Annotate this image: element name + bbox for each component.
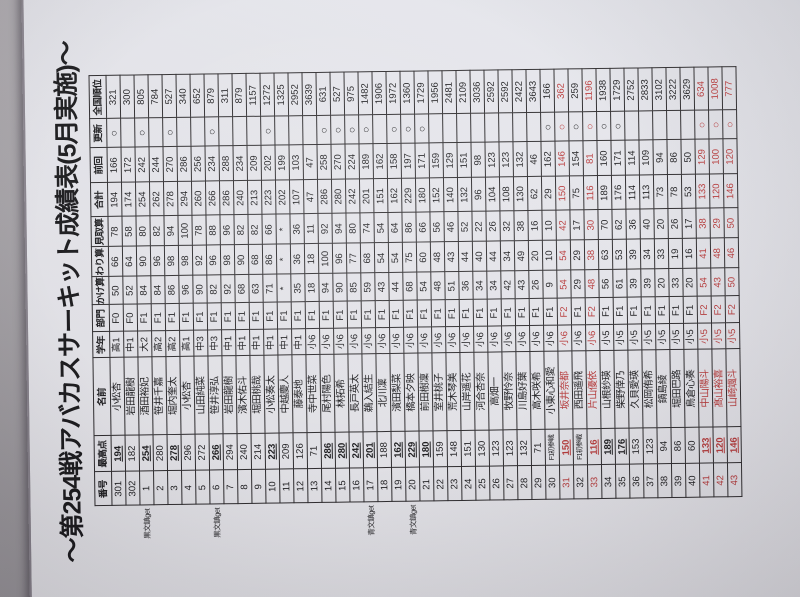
cell-number: 7	[224, 470, 238, 504]
cell-best-score: 286	[321, 433, 336, 469]
cell-prize-note	[448, 501, 463, 539]
cell-multiplication: 39	[641, 269, 655, 297]
cell-number: 26	[490, 466, 504, 500]
cell-division-score: 34	[640, 239, 654, 269]
cell-best-score: 151	[461, 431, 476, 467]
cell-total: 104	[485, 177, 499, 211]
cell-previous: 166	[107, 148, 121, 183]
cell-total: 174	[122, 182, 136, 216]
cell-previous: 286	[177, 147, 191, 182]
cell-division: F1	[375, 301, 389, 328]
cell-total: 107	[289, 180, 303, 214]
cell-multiplication: *	[277, 274, 291, 302]
cell-total: 162	[387, 179, 401, 213]
page-title: ～第254戦アバカスサーキット成績表(5月実施)～	[45, 0, 89, 597]
cell-name: 西田遥飛	[572, 351, 587, 429]
cell-best-score: 148	[447, 431, 462, 467]
cell-number: 13	[308, 469, 322, 503]
cell-best-score: 162	[391, 432, 406, 468]
cell-division-score: 44	[486, 241, 500, 271]
cell-best-score: 176	[615, 429, 630, 465]
cell-update-mark	[121, 118, 135, 147]
cell-number: 24	[462, 467, 476, 501]
cell-mitori: 17	[570, 210, 584, 240]
cell-mitori: 16	[528, 211, 542, 241]
cell-total: 47	[303, 180, 317, 214]
cell-total: 151	[373, 179, 387, 213]
cell-grade: 小5	[628, 324, 642, 350]
cell-multiplication: 34	[473, 272, 487, 300]
cell-division-score: 77	[346, 243, 360, 273]
cell-division: F1	[347, 301, 361, 328]
cell-total: 194	[108, 183, 122, 217]
cell-national-rank: 321	[106, 76, 121, 119]
cell-name: 河合杏奈	[474, 353, 489, 431]
cell-multiplication: 42	[501, 271, 515, 299]
cell-multiplication: 71	[263, 275, 277, 303]
cell-number: 38	[657, 464, 671, 498]
cell-national-rank: 527	[330, 73, 345, 116]
cell-mitori: 30	[584, 210, 598, 240]
cell-prize-note	[714, 497, 729, 535]
cell-number: 11	[280, 469, 294, 503]
cell-division-score: 96	[206, 245, 220, 275]
cell-grade: 大2	[138, 331, 152, 357]
cell-number: 37	[643, 464, 657, 498]
cell-grade: 小6	[586, 325, 600, 351]
cell-name: 岩田龍樹	[124, 357, 139, 435]
cell-number: 302	[126, 471, 140, 505]
cell-national-rank: 3629	[680, 68, 695, 111]
cell-division: F1	[165, 304, 179, 331]
cell-division-score: 100	[318, 244, 332, 274]
cell-previous: 158	[387, 144, 401, 179]
cell-prize-note	[392, 502, 407, 540]
cell-total: 150	[555, 176, 569, 210]
cell-total: 286	[219, 181, 233, 215]
cell-national-rank: 3102	[652, 68, 667, 111]
cell-division: F2	[697, 296, 711, 323]
cell-multiplication: 68	[403, 273, 417, 301]
cell-number: 41	[699, 463, 713, 497]
cell-division-score: 68	[360, 243, 374, 273]
cell-total: 29	[541, 177, 555, 211]
cell-name: 室井桃子	[432, 353, 447, 431]
cell-multiplication: 36	[459, 272, 473, 300]
cell-best-score: 272	[195, 434, 210, 470]
cell-division: F1	[501, 299, 515, 326]
cell-previous: 288	[219, 146, 233, 181]
cell-national-rank: 652	[190, 75, 205, 118]
cell-division: F1	[529, 299, 543, 326]
cell-grade: 小6	[558, 325, 572, 351]
cell-national-rank: 2422	[512, 70, 527, 113]
cell-previous: 162	[373, 144, 387, 179]
cell-national-rank: 1972	[386, 72, 401, 115]
cell-mitori: 52	[458, 212, 472, 242]
cell-division-score: 16	[682, 239, 696, 269]
cell-update-mark	[303, 116, 317, 145]
cell-previous: 256	[191, 146, 205, 181]
cell-grade: 高2	[152, 331, 166, 357]
cell-total: 201	[359, 179, 373, 213]
cell-division-score: 49	[514, 241, 528, 271]
cell-mitori: 22	[472, 212, 486, 242]
cell-division-score: 48	[430, 242, 444, 272]
cell-division-score: 46	[724, 238, 738, 268]
cell-division: F1	[403, 301, 417, 328]
cell-grade: 高2	[166, 331, 180, 357]
cell-best-score: 130	[475, 431, 490, 467]
cell-update-mark	[471, 114, 485, 143]
cell-previous: 123	[499, 142, 513, 177]
cell-update-mark: ○	[583, 112, 597, 141]
cell-previous: 129	[443, 143, 457, 178]
cell-previous: 172	[121, 147, 135, 182]
cell-grade: 小6	[320, 329, 334, 355]
cell-mitori: 86	[402, 213, 416, 243]
cell-mitori: 26	[668, 209, 682, 239]
cell-national-rank: 879	[232, 74, 247, 117]
cell-division: F1	[151, 304, 165, 331]
cell-national-rank: 631	[316, 73, 331, 116]
cell-mitori: 56	[430, 212, 444, 242]
cell-grade: 中1	[264, 330, 278, 356]
cell-prize-note	[504, 500, 519, 538]
cell-update-mark: ○	[135, 118, 149, 147]
cell-division: F1	[655, 297, 669, 324]
cell-division: F1	[613, 298, 627, 325]
cell-mitori: *	[276, 214, 290, 244]
cell-division-score: 40	[472, 242, 486, 272]
header-cell-grade: 学年	[93, 332, 110, 358]
cell-total: 96	[471, 178, 485, 212]
cell-previous: 242	[135, 147, 149, 182]
cell-previous: 109	[639, 140, 653, 175]
cell-total: 213	[247, 181, 261, 215]
cell-previous: 86	[667, 140, 681, 175]
cell-national-rank: 1729	[414, 71, 429, 114]
cell-national-rank: 784	[148, 75, 163, 118]
cell-national-rank: 1008	[708, 67, 723, 110]
cell-update-mark	[191, 117, 205, 146]
cell-division-score: 54	[556, 240, 570, 270]
cell-multiplication: 68	[235, 275, 249, 303]
cell-mitori: 36	[626, 209, 640, 239]
cell-mitori: 96	[220, 215, 234, 245]
cell-name: 片山優依	[586, 351, 601, 429]
cell-multiplication: 84	[151, 276, 165, 304]
cell-best-score: 159	[433, 431, 448, 467]
cell-national-rank: 1906	[372, 72, 387, 115]
cell-name: 小松杏	[180, 357, 195, 435]
cell-grade: 小6	[334, 329, 348, 355]
cell-grade: 中3	[208, 330, 222, 356]
cell-division-score: 63	[598, 240, 612, 270]
cell-division-score: 66	[108, 247, 122, 277]
cell-update-mark	[429, 114, 443, 143]
cell-grade: 小6	[446, 327, 460, 353]
cell-mitori: 100	[178, 216, 192, 246]
cell-total: 133	[695, 174, 709, 208]
cell-multiplication: 94	[319, 274, 333, 302]
cell-best-score: 182	[125, 435, 140, 471]
cell-name: 山田純菜	[194, 356, 209, 434]
cell-update-mark	[247, 117, 261, 146]
cell-mitori: 82	[248, 215, 262, 245]
cell-number: 29	[531, 466, 545, 500]
cell-prize-note: 青文鎮get	[406, 502, 421, 540]
cell-name: 松岡侑希	[642, 350, 657, 428]
cell-number: 18	[378, 468, 392, 502]
cell-previous: 81	[583, 141, 597, 176]
cell-multiplication: 90	[333, 274, 347, 302]
cell-update-mark	[681, 111, 695, 140]
cell-multiplication: 59	[361, 273, 375, 301]
cell-name: 濱木佑斗	[236, 356, 251, 434]
cell-multiplication: 34	[487, 271, 501, 299]
cell-prize-note	[322, 503, 337, 541]
cell-previous: 197	[401, 144, 415, 179]
cell-grade: 小6	[404, 328, 418, 354]
cell-division-score: 19	[668, 239, 682, 269]
cell-grade: 小6	[348, 328, 362, 354]
cell-grade: 小6	[516, 326, 530, 352]
cell-total: 280	[331, 180, 345, 214]
cell-national-rank: 2952	[288, 73, 303, 116]
cell-total: 75	[569, 176, 583, 210]
cell-national-rank: 2752	[624, 68, 639, 111]
cell-division: F2	[711, 296, 725, 323]
cell-best-score: 60	[685, 428, 700, 464]
cell-update-mark: ○	[709, 110, 723, 139]
cell-mitori: 58	[122, 216, 136, 246]
cell-mitori: 74	[360, 213, 374, 243]
cell-previous: 209	[247, 146, 261, 181]
cell-division-score: 90	[136, 246, 150, 276]
cell-mitori: 42	[556, 210, 570, 240]
cell-multiplication: 43	[711, 268, 725, 296]
cell-total: 242	[345, 179, 359, 213]
cell-name: 髙山裕喜	[712, 349, 727, 427]
cell-prize-note	[266, 503, 281, 541]
cell-national-rank: 362	[554, 69, 569, 112]
cell-number: 43	[727, 463, 741, 497]
cell-national-rank: 975	[344, 72, 359, 115]
cell-division-score: 86	[262, 245, 276, 275]
cell-best-score: 188	[377, 432, 392, 468]
cell-update-mark	[653, 111, 667, 140]
cell-update-mark	[373, 115, 387, 144]
cell-total: 294	[177, 182, 191, 216]
cell-mitori: 40	[640, 209, 654, 239]
cell-national-rank: 2109	[456, 71, 471, 114]
cell-multiplication: 33	[669, 269, 683, 297]
cell-best-score: 223	[265, 434, 280, 470]
cell-mitori: 70	[598, 210, 612, 240]
cell-mitori: 78	[192, 215, 206, 245]
results-table-wrapper: 番号最高点名前学年部門かけ算わり算見取算合計前回更新全国順位 301194小松杏…	[87, 0, 743, 544]
cell-grade: 小6	[474, 327, 488, 353]
cell-total: 113	[639, 175, 653, 209]
cell-division: F1	[459, 300, 473, 327]
cell-name: 北川凜	[376, 354, 391, 432]
cell-division: F2	[557, 298, 571, 325]
cell-total: 240	[233, 181, 247, 215]
cell-name: 山岸遥花	[460, 353, 475, 431]
cell-number: 42	[713, 463, 727, 497]
cell-mitori: 38	[514, 211, 528, 241]
cell-grade: 小6	[502, 326, 516, 352]
cell-update-mark	[219, 117, 233, 146]
cell-multiplication: 20	[683, 269, 697, 297]
cell-best-score: 296	[181, 435, 196, 471]
cell-division: F1	[389, 301, 403, 328]
cell-multiplication: 20	[655, 269, 669, 297]
cell-prize-note	[728, 497, 743, 535]
cell-division: F1	[277, 302, 291, 329]
cell-number: 4	[182, 471, 196, 505]
cell-mitori: 94	[332, 214, 346, 244]
cell-best-score: 189	[601, 429, 616, 465]
cell-national-rank: 1956	[428, 71, 443, 114]
cell-previous: 160	[597, 141, 611, 176]
cell-update-mark	[177, 118, 191, 147]
cell-name: 小松杏	[110, 358, 125, 436]
cell-grade: 小6	[460, 327, 474, 353]
cell-previous: 94	[653, 140, 667, 175]
cell-update-mark: ○	[611, 112, 625, 141]
cell-best-score: 254	[139, 435, 154, 471]
cell-prize-note	[462, 501, 477, 539]
cell-number: 34	[601, 465, 615, 499]
cell-division-score: 53	[612, 240, 626, 270]
cell-best-score: 280	[153, 435, 168, 471]
cell-division: F1	[221, 303, 235, 330]
cell-grade: 中1	[222, 330, 236, 356]
cell-multiplication: 82	[207, 275, 221, 303]
cell-division-score: 68	[248, 245, 262, 275]
cell-update-mark: ○	[569, 112, 583, 141]
cell-multiplication: 85	[347, 273, 361, 301]
cell-previous: 120	[723, 139, 737, 174]
cell-prize-note	[378, 502, 393, 540]
cell-best-score: 71	[307, 433, 322, 469]
cell-prize-note	[224, 504, 239, 542]
cell-name: 柴野倖乃	[614, 351, 629, 429]
cell-number: 20	[406, 468, 420, 502]
cell-number: 1	[140, 471, 154, 505]
cell-name: 山根紗瑛	[600, 351, 615, 429]
cell-update-mark: ○	[387, 115, 401, 144]
cell-best-score: 123	[643, 428, 658, 464]
cell-best-score: 126	[293, 433, 308, 469]
cell-multiplication: 54	[697, 268, 711, 296]
cell-division-score: 29	[570, 240, 584, 270]
cell-name: 鍋島綾	[656, 350, 671, 428]
cell-number: 28	[517, 466, 531, 500]
cell-total: 223	[261, 181, 275, 215]
cell-division-score: 98	[178, 246, 192, 276]
cell-best-score: 240	[237, 434, 252, 470]
cell-number: 33	[587, 465, 601, 499]
cell-previous: 162	[541, 142, 555, 177]
cell-number: 6	[210, 470, 224, 504]
cell-division-score: *	[276, 244, 290, 274]
cell-best-score: 201	[363, 432, 378, 468]
cell-division: F2	[585, 298, 599, 325]
cell-previous: 270	[331, 145, 345, 180]
cell-best-score: 123	[489, 430, 504, 466]
cell-best-score: 120	[713, 427, 728, 463]
cell-update-mark	[485, 113, 499, 142]
cell-multiplication: 50	[725, 268, 739, 296]
cell-previous: 234	[205, 146, 219, 181]
cell-mitori: 66	[416, 212, 430, 242]
cell-national-rank: 1157	[246, 74, 261, 117]
cell-number: 8	[238, 470, 252, 504]
cell-prize-note	[168, 505, 183, 543]
cell-division: F1	[515, 299, 529, 326]
cell-previous: 100	[709, 139, 723, 174]
cell-total: 180	[415, 178, 429, 212]
cell-total: 262	[149, 182, 163, 216]
cell-division-score: 41	[696, 238, 710, 268]
cell-national-rank: 259	[568, 69, 583, 112]
cell-update-mark	[149, 118, 163, 147]
cell-prize-note	[574, 499, 589, 537]
cell-mitori: 36	[290, 214, 304, 244]
cell-previous: 189	[359, 144, 373, 179]
cell-mitori: 17	[682, 209, 696, 239]
cell-name: 坂井奈都	[558, 351, 573, 429]
cell-number: 12	[294, 469, 308, 503]
cell-update-mark	[499, 113, 513, 142]
cell-name: 林拓希	[334, 355, 349, 433]
cell-division: F0	[123, 304, 137, 331]
cell-update-mark	[527, 113, 541, 142]
cell-grade: 小5	[726, 323, 740, 349]
cell-division-score: 64	[122, 246, 136, 276]
cell-update-mark: ○	[723, 110, 737, 139]
cell-total: 254	[135, 182, 149, 216]
cell-national-rank: 300	[120, 75, 135, 118]
cell-prize-note: 黒文鎮get	[210, 504, 225, 542]
cell-multiplication: 84	[137, 276, 151, 304]
cell-name: 濱田梨菜	[390, 354, 405, 432]
cell-prize-note: 青文鎮get	[364, 502, 379, 540]
cell-prize-note	[252, 504, 267, 542]
cell-division-score: 92	[192, 245, 206, 275]
cell-best-score: 94	[657, 428, 672, 464]
cell-division: F1	[683, 297, 697, 324]
cell-division: F1	[417, 300, 431, 327]
cell-previous: 159	[429, 143, 443, 178]
cell-number: 27	[503, 466, 517, 500]
cell-best-score: 209	[279, 433, 294, 469]
cell-previous: 258	[317, 145, 331, 180]
cell-national-rank: 1729	[610, 69, 625, 112]
header-cell-mitori: 見取算	[91, 217, 108, 247]
cell-number: 5	[196, 470, 210, 504]
cell-name: 藤泰地	[292, 355, 307, 433]
cell-prize-note	[350, 502, 365, 540]
cell-best-score: 153	[629, 428, 644, 464]
cell-multiplication: 54	[417, 272, 431, 300]
cell-mitori: 64	[388, 213, 402, 243]
cell-total: 114	[625, 175, 639, 209]
cell-grade: 中1	[278, 329, 292, 355]
